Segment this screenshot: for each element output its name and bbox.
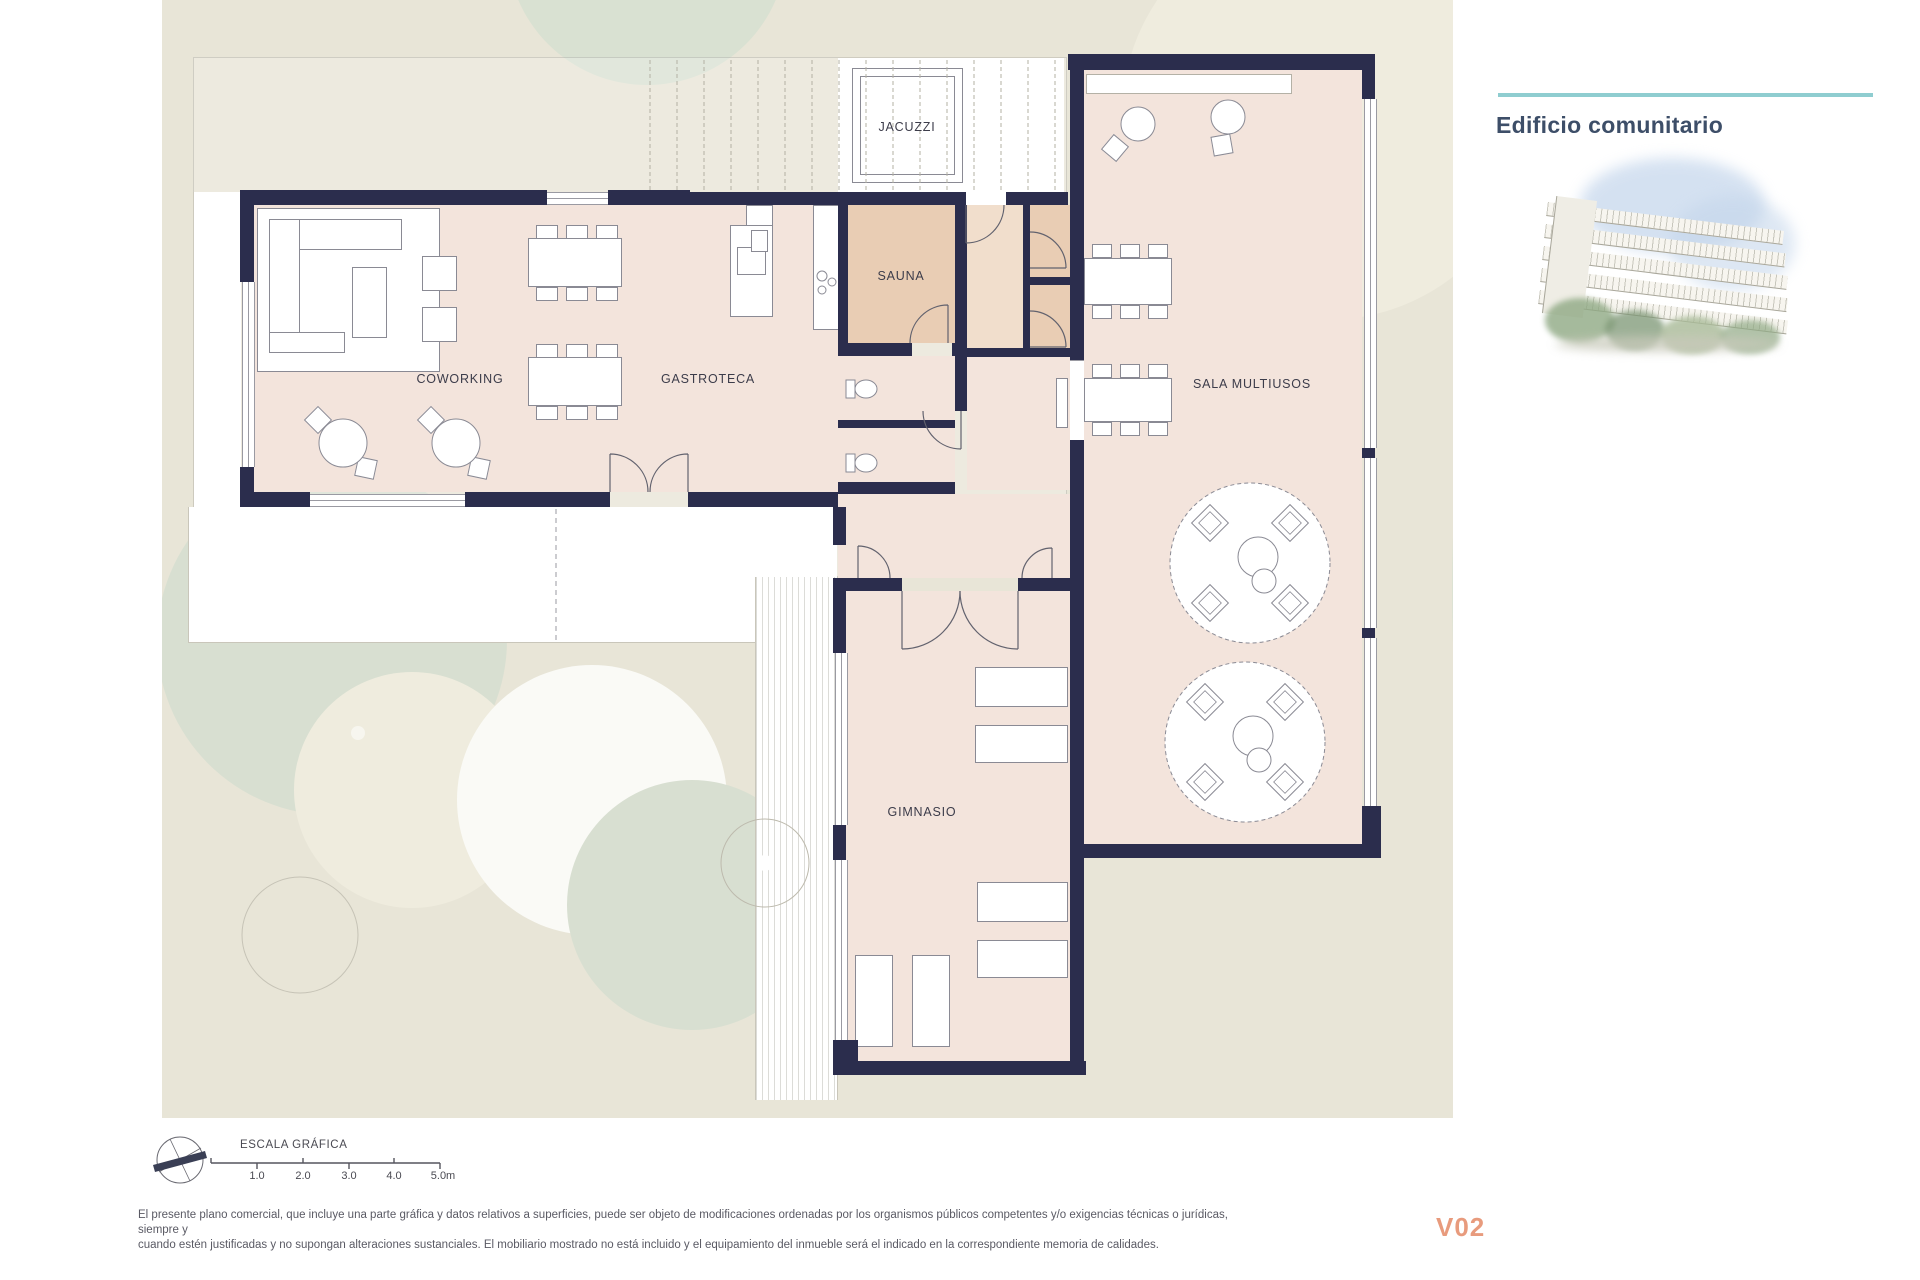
room-label-coworking: COWORKING — [416, 372, 503, 386]
room-label-gastroteca: GASTROTECA — [661, 372, 755, 386]
scale-tick-label: 5.0m — [431, 1170, 455, 1182]
door-arcs — [610, 205, 1066, 649]
scale-bar — [211, 1158, 440, 1169]
room-label-sala-multiusos: SALA MULTIUSOS — [1193, 377, 1311, 391]
scale-tick-label: 3.0 — [341, 1170, 356, 1182]
bistro-table — [319, 100, 1245, 467]
disclaimer-line-1: El presente plano comercial, que incluye… — [138, 1208, 1233, 1238]
room-label-sauna: SAUNA — [877, 269, 924, 283]
toilet-icon — [846, 380, 877, 472]
room-label-jacuzzi: JACUZZI — [879, 120, 936, 134]
page-title: Edificio comunitario — [1496, 112, 1723, 139]
scale-tick-label: 2.0 — [295, 1170, 310, 1182]
round-lounge-set — [1165, 662, 1325, 822]
page: JACUZZI SAUNA COWORKING GASTROTECA SALA … — [0, 0, 1920, 1280]
ground-shadow — [1555, 336, 1780, 352]
version-label: V02 — [1436, 1212, 1485, 1243]
disclaimer-line-2: cuando estén justificadas y no supongan … — [138, 1238, 1233, 1253]
scale-tick-label: 1.0 — [249, 1170, 264, 1182]
vegetation — [1545, 298, 1615, 343]
scale-tick-label: 4.0 — [386, 1170, 401, 1182]
stove-icon — [817, 271, 836, 294]
accent-line — [1498, 93, 1873, 97]
scale-title: ESCALA GRÁFICA — [240, 1139, 347, 1151]
tree-symbol — [242, 726, 809, 993]
disclaimer: El presente plano comercial, que incluye… — [138, 1208, 1233, 1253]
compass-icon — [153, 1137, 207, 1183]
decking-lines — [556, 60, 1055, 640]
room-label-gimnasio: GIMNASIO — [888, 805, 957, 819]
building-illustration — [1535, 158, 1803, 358]
round-lounge-set — [1170, 483, 1330, 643]
